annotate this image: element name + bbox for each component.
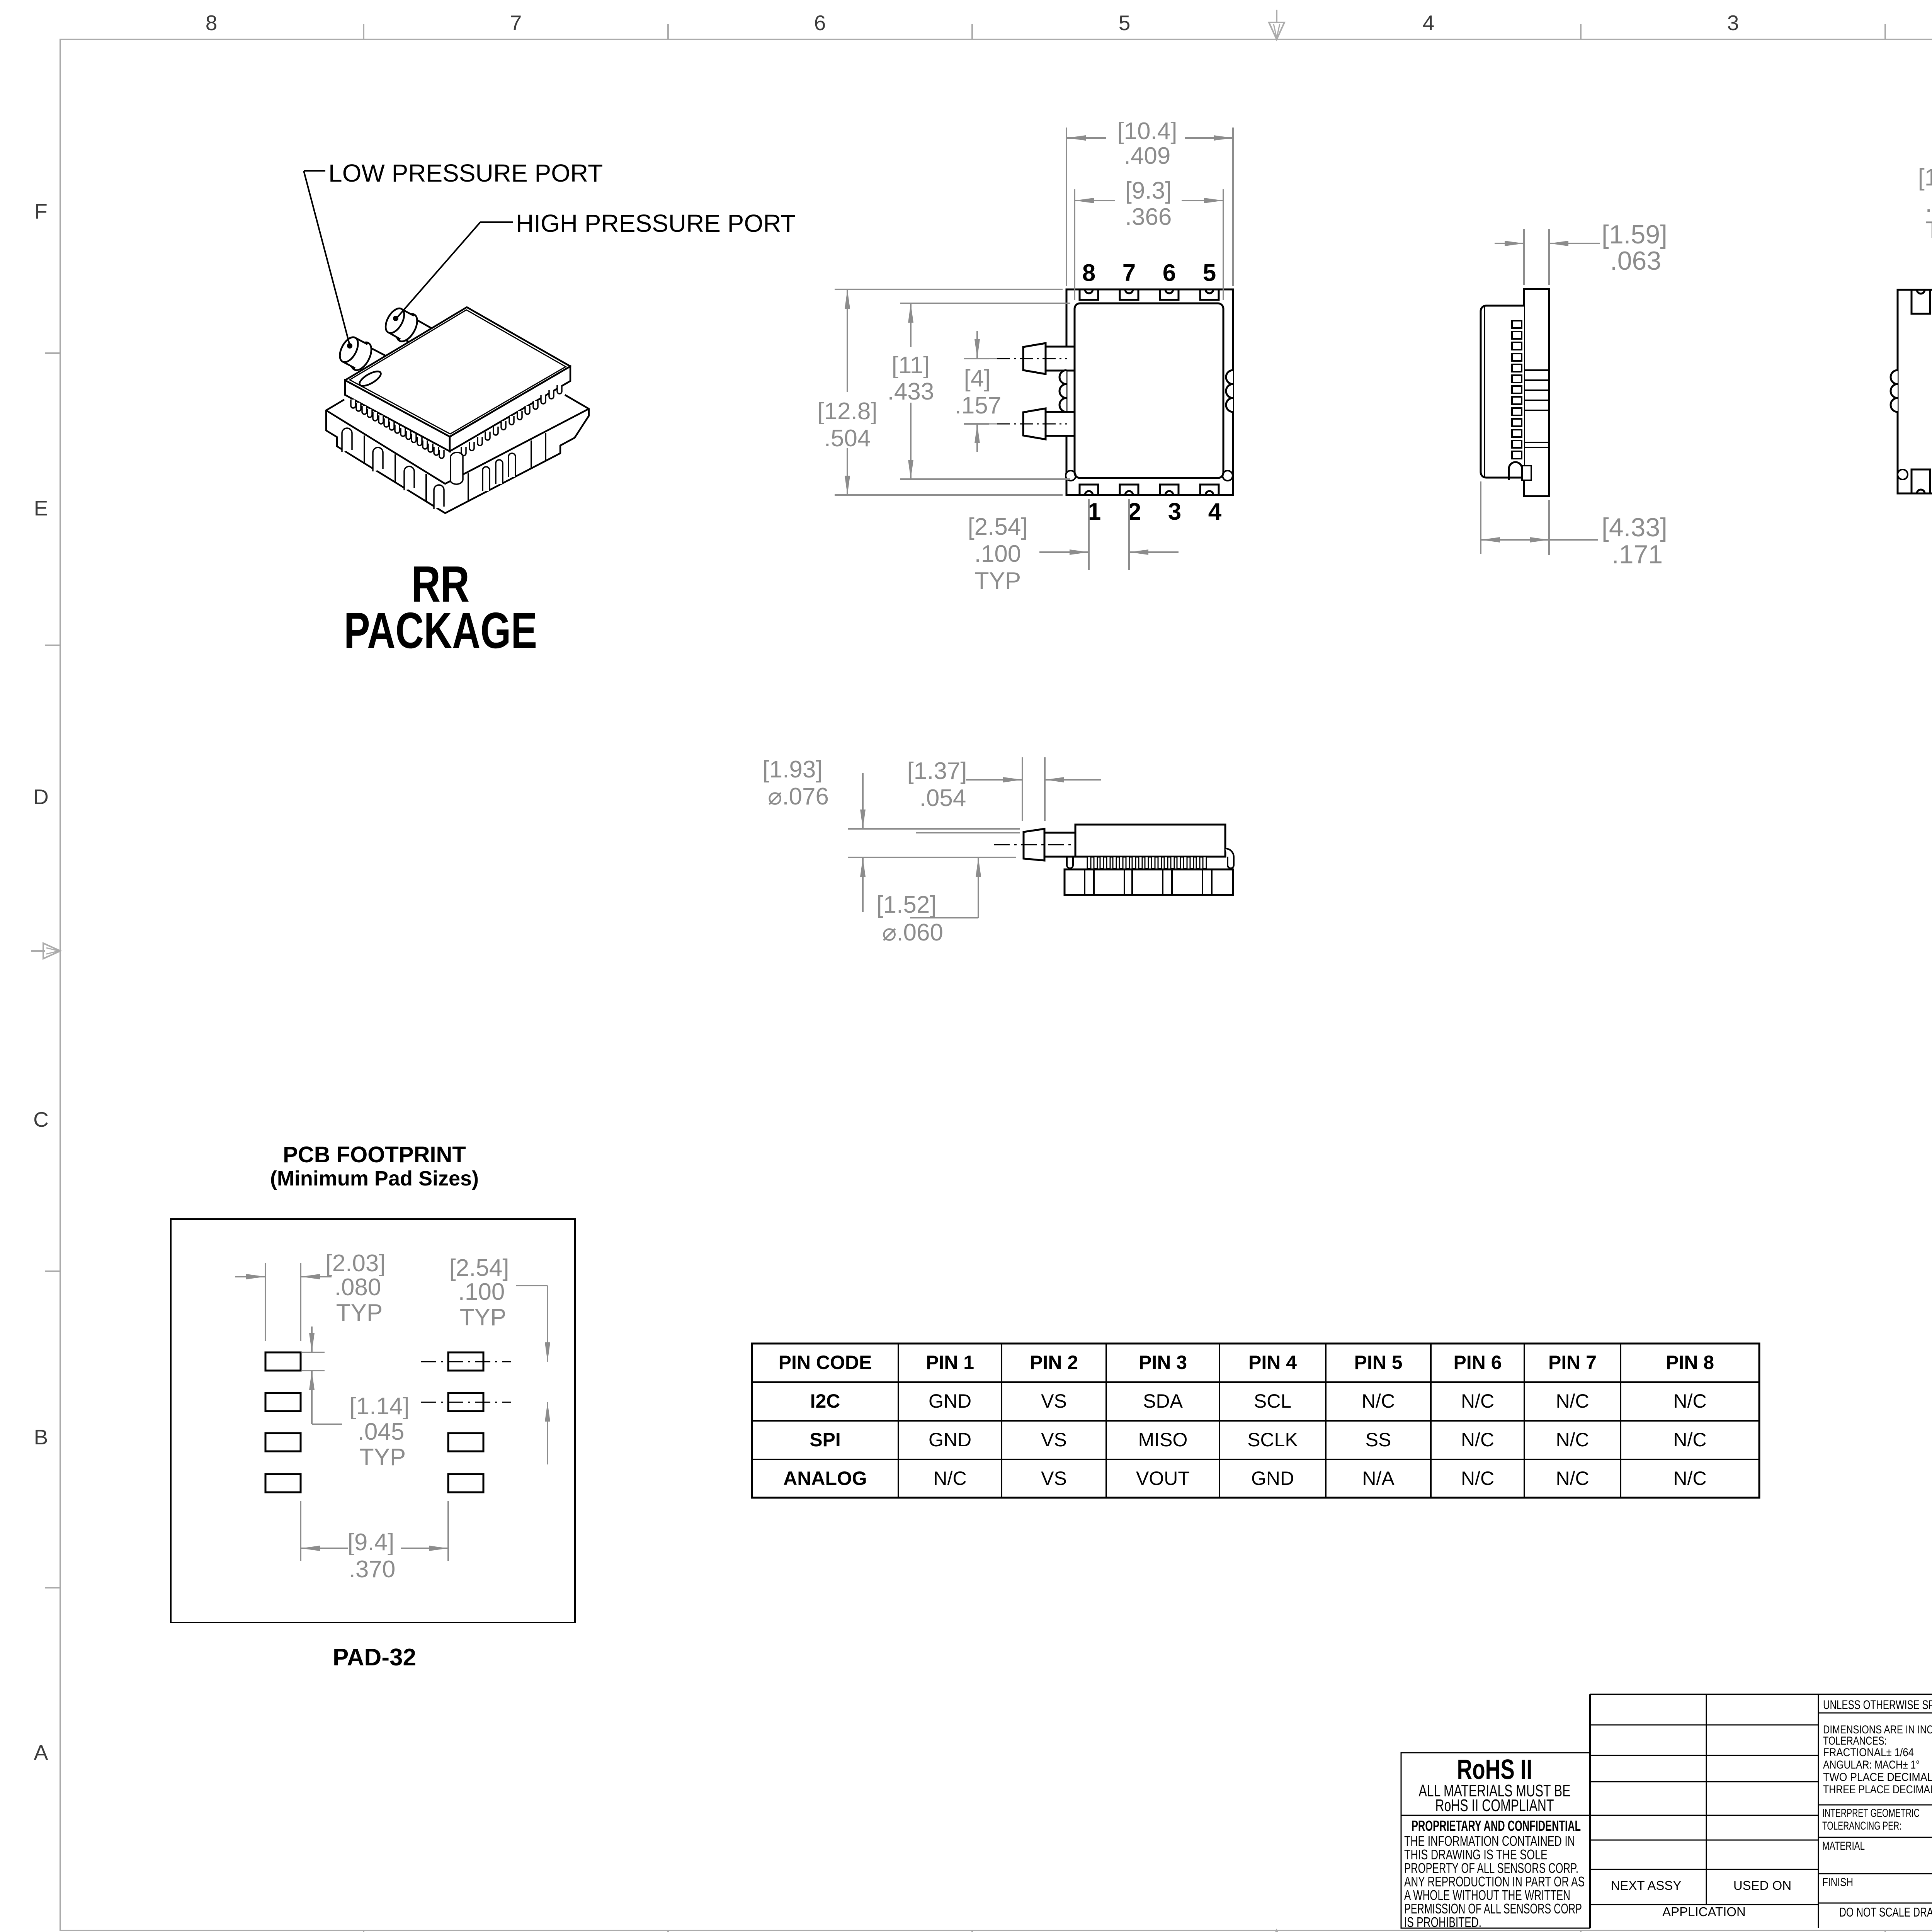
svg-text:PIN CODE: PIN CODE [779, 1352, 872, 1373]
svg-text:INTERPRET GEOMETRIC: INTERPRET GEOMETRIC [1822, 1807, 1920, 1820]
svg-text:[4]: [4] [964, 365, 991, 392]
svg-text:PCB FOOTPRINT: PCB FOOTPRINT [283, 1142, 466, 1167]
svg-text:8: 8 [1082, 260, 1095, 286]
svg-text:.100: .100 [975, 541, 1021, 567]
svg-text:[9.4]: [9.4] [348, 1529, 395, 1556]
svg-text:IS PROHIBITED.: IS PROHIBITED. [1404, 1914, 1481, 1930]
svg-text:TYP: TYP [460, 1304, 507, 1331]
svg-text:VS: VS [1041, 1390, 1067, 1412]
svg-text:[1.59]: [1.59] [1602, 220, 1667, 249]
svg-text:N/C: N/C [1556, 1468, 1589, 1489]
svg-text:SCLK: SCLK [1247, 1429, 1298, 1451]
svg-text:[1.12]: [1.12] [1918, 164, 1932, 191]
svg-text:PIN 4: PIN 4 [1248, 1352, 1297, 1373]
svg-text:FINISH: FINISH [1822, 1876, 1853, 1889]
svg-text:PAD-32: PAD-32 [333, 1644, 416, 1671]
svg-text:PACKAGE: PACKAGE [344, 602, 537, 659]
svg-text:RoHS II: RoHS II [1457, 1754, 1532, 1785]
svg-text:NEXT ASSY: NEXT ASSY [1611, 1878, 1682, 1893]
svg-text:TYP: TYP [359, 1444, 406, 1471]
svg-text:.370: .370 [349, 1556, 396, 1583]
svg-text:.054: .054 [920, 785, 966, 811]
svg-text:(Minimum Pad Sizes): (Minimum Pad Sizes) [270, 1167, 479, 1190]
svg-text:SDA: SDA [1143, 1390, 1183, 1412]
svg-text:[1.37]: [1.37] [907, 758, 967, 784]
svg-text:HIGH PRESSURE PORT: HIGH PRESSURE PORT [516, 209, 796, 237]
svg-text:.063: .063 [1610, 246, 1661, 276]
svg-text:N/C: N/C [1673, 1468, 1706, 1489]
svg-text:[10.4]: [10.4] [1117, 118, 1177, 145]
svg-text:THREE PLACE DECIMAL ±.005: THREE PLACE DECIMAL ±.005 [1823, 1783, 1932, 1796]
svg-text:N/C: N/C [1461, 1468, 1494, 1489]
svg-text:N/C: N/C [1461, 1429, 1494, 1451]
svg-text:⌀.060: ⌀.060 [882, 919, 943, 946]
svg-text:4: 4 [1208, 498, 1222, 525]
svg-text:SS: SS [1366, 1429, 1391, 1451]
svg-text:N/C: N/C [1673, 1390, 1706, 1412]
svg-text:C: C [33, 1107, 49, 1131]
svg-text:[9.3]: [9.3] [1125, 177, 1172, 204]
svg-text:A: A [34, 1740, 48, 1764]
svg-text:PIN 1: PIN 1 [926, 1352, 974, 1373]
svg-text:7: 7 [1122, 260, 1136, 286]
svg-text:ANALOG: ANALOG [783, 1468, 867, 1489]
svg-text:⌀.076: ⌀.076 [768, 783, 829, 810]
svg-text:[1.14]: [1.14] [349, 1393, 409, 1420]
svg-text:[2.54]: [2.54] [968, 514, 1027, 540]
svg-text:GND: GND [929, 1429, 971, 1451]
svg-text:N/C: N/C [933, 1468, 966, 1489]
svg-text:[4.33]: [4.33] [1602, 513, 1667, 542]
svg-text:N/C: N/C [1556, 1390, 1589, 1412]
svg-text:6: 6 [814, 11, 826, 35]
svg-text:.080: .080 [335, 1274, 381, 1301]
svg-text:5: 5 [1119, 11, 1131, 35]
svg-text:ANGULAR: MACH± 1°: ANGULAR: MACH± 1° [1823, 1759, 1920, 1771]
svg-text:[11]: [11] [892, 352, 930, 379]
svg-text:N/C: N/C [1556, 1429, 1589, 1451]
svg-text:.409: .409 [1124, 143, 1171, 169]
svg-text:TOLERANCING PER:: TOLERANCING PER: [1822, 1820, 1901, 1832]
svg-text:N/C: N/C [1362, 1390, 1395, 1412]
svg-text:[1.52]: [1.52] [876, 891, 936, 918]
svg-text:PIN 3: PIN 3 [1139, 1352, 1187, 1373]
svg-text:6: 6 [1163, 260, 1176, 286]
svg-text:[2.03]: [2.03] [325, 1250, 385, 1277]
svg-text:APPLICATION: APPLICATION [1662, 1905, 1746, 1919]
svg-text:PIN 2: PIN 2 [1030, 1352, 1078, 1373]
svg-text:5: 5 [1203, 260, 1216, 286]
svg-text:RoHS II COMPLIANT: RoHS II COMPLIANT [1435, 1796, 1554, 1815]
svg-text:TOLERANCES:: TOLERANCES: [1823, 1735, 1887, 1747]
svg-text:8: 8 [206, 11, 218, 35]
svg-text:DO NOT SCALE DRAWING: DO NOT SCALE DRAWING [1839, 1905, 1932, 1919]
svg-text:TYP: TYP [1925, 217, 1932, 243]
svg-text:MATERIAL: MATERIAL [1822, 1840, 1865, 1852]
svg-text:.045: .045 [358, 1418, 405, 1445]
svg-text:D: D [33, 785, 49, 809]
svg-text:LOW PRESSURE PORT: LOW PRESSURE PORT [328, 159, 603, 187]
svg-text:.504: .504 [824, 425, 871, 452]
svg-text:FRACTIONAL± 1/64: FRACTIONAL± 1/64 [1823, 1746, 1914, 1759]
svg-text:3: 3 [1727, 11, 1739, 35]
svg-text:.433: .433 [888, 378, 934, 405]
svg-text:[1.93]: [1.93] [762, 756, 822, 783]
svg-text:UNLESS OTHERWISE SPECIFIED:: UNLESS OTHERWISE SPECIFIED: [1823, 1698, 1932, 1712]
svg-text:PIN 7: PIN 7 [1548, 1352, 1597, 1373]
svg-text:GND: GND [929, 1390, 971, 1412]
svg-text:VOUT: VOUT [1136, 1468, 1190, 1489]
svg-text:GND: GND [1251, 1468, 1294, 1489]
svg-text:.171: .171 [1612, 540, 1663, 569]
svg-text:TYP: TYP [975, 568, 1021, 594]
svg-text:VS: VS [1041, 1429, 1067, 1451]
svg-text:3: 3 [1168, 498, 1181, 525]
svg-text:B: B [34, 1425, 48, 1449]
svg-text:.157: .157 [955, 392, 1002, 419]
svg-text:SCL: SCL [1254, 1390, 1291, 1412]
svg-text:PIN 5: PIN 5 [1354, 1352, 1402, 1373]
svg-text:TWO PLACE DECIMAL ±.01: TWO PLACE DECIMAL ±.01 [1823, 1771, 1932, 1784]
svg-text:PROPRIETARY AND CONFIDENTIAL: PROPRIETARY AND CONFIDENTIAL [1412, 1818, 1581, 1834]
svg-text:SPI: SPI [810, 1429, 841, 1451]
svg-text:N/A: N/A [1362, 1468, 1395, 1489]
svg-text:4: 4 [1423, 11, 1435, 35]
svg-text:F: F [34, 199, 48, 223]
svg-text:MISO: MISO [1138, 1429, 1188, 1451]
svg-text:[12.8]: [12.8] [817, 398, 877, 425]
svg-text:.100: .100 [458, 1279, 505, 1305]
svg-text:N/C: N/C [1673, 1429, 1706, 1451]
svg-text:I2C: I2C [810, 1390, 840, 1412]
svg-text:PIN 6: PIN 6 [1453, 1352, 1502, 1373]
svg-text:7: 7 [510, 11, 522, 35]
svg-text:[2.54]: [2.54] [449, 1255, 509, 1281]
svg-text:E: E [34, 496, 48, 520]
svg-text:.044: .044 [1925, 190, 1932, 217]
svg-text:.366: .366 [1125, 204, 1172, 230]
svg-text:USED ON: USED ON [1733, 1878, 1791, 1893]
svg-text:VS: VS [1041, 1468, 1067, 1489]
svg-text:TYP: TYP [336, 1299, 383, 1326]
svg-text:N/C: N/C [1461, 1390, 1494, 1412]
svg-text:PIN 8: PIN 8 [1666, 1352, 1714, 1373]
